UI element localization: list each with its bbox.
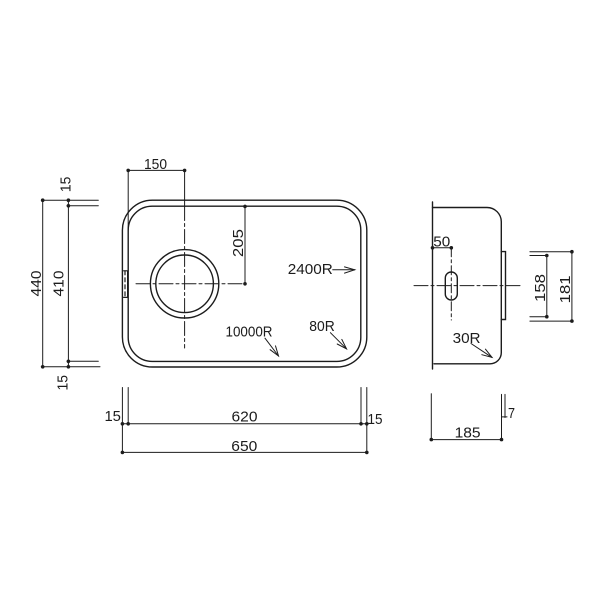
- svg-text:50: 50: [433, 233, 450, 250]
- svg-text:15: 15: [104, 408, 121, 425]
- svg-text:7: 7: [508, 405, 515, 422]
- svg-text:440: 440: [28, 271, 45, 297]
- svg-text:15: 15: [58, 177, 75, 193]
- svg-text:2400R: 2400R: [288, 261, 333, 278]
- svg-text:620: 620: [232, 408, 258, 425]
- svg-text:158: 158: [532, 274, 549, 302]
- svg-text:30R: 30R: [453, 330, 481, 347]
- svg-text:150: 150: [144, 156, 167, 173]
- svg-text:205: 205: [230, 229, 247, 257]
- svg-text:410: 410: [51, 271, 68, 297]
- svg-text:15: 15: [55, 375, 72, 391]
- svg-text:185: 185: [455, 424, 481, 441]
- svg-text:650: 650: [231, 438, 257, 455]
- svg-text:80R: 80R: [309, 318, 335, 335]
- svg-text:10000R: 10000R: [226, 324, 273, 341]
- svg-text:15: 15: [368, 411, 383, 428]
- svg-text:181: 181: [557, 275, 574, 303]
